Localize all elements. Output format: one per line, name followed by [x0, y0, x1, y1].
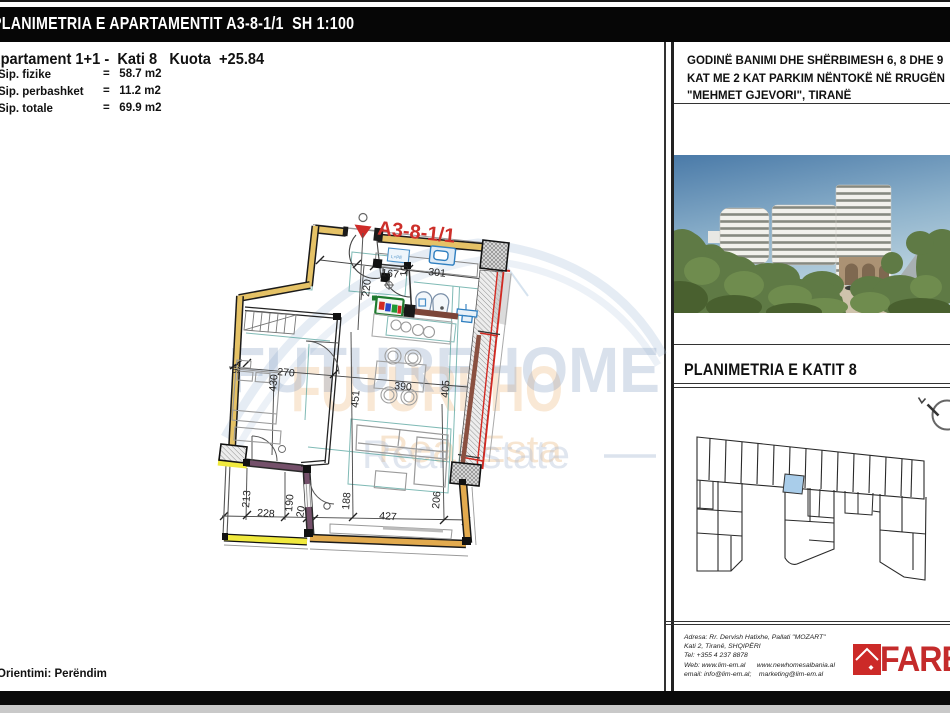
svg-text:167: 167 [381, 267, 400, 281]
svg-text:301: 301 [428, 266, 447, 280]
svg-text:L+PË: L+PË [391, 253, 403, 260]
svg-text:390: 390 [394, 380, 413, 393]
svg-text:10: 10 [398, 264, 411, 277]
svg-text:213: 213 [240, 490, 253, 509]
svg-text:206: 206 [430, 491, 443, 510]
svg-text:20: 20 [294, 505, 308, 519]
svg-text:220: 220 [360, 278, 374, 297]
svg-text:188: 188 [340, 492, 353, 511]
svg-text:95: 95 [230, 363, 242, 375]
svg-text:405: 405 [439, 380, 452, 399]
svg-text:427: 427 [379, 510, 397, 523]
svg-text:451: 451 [349, 390, 362, 409]
svg-text:430: 430 [267, 374, 280, 393]
svg-text:228: 228 [257, 507, 275, 520]
